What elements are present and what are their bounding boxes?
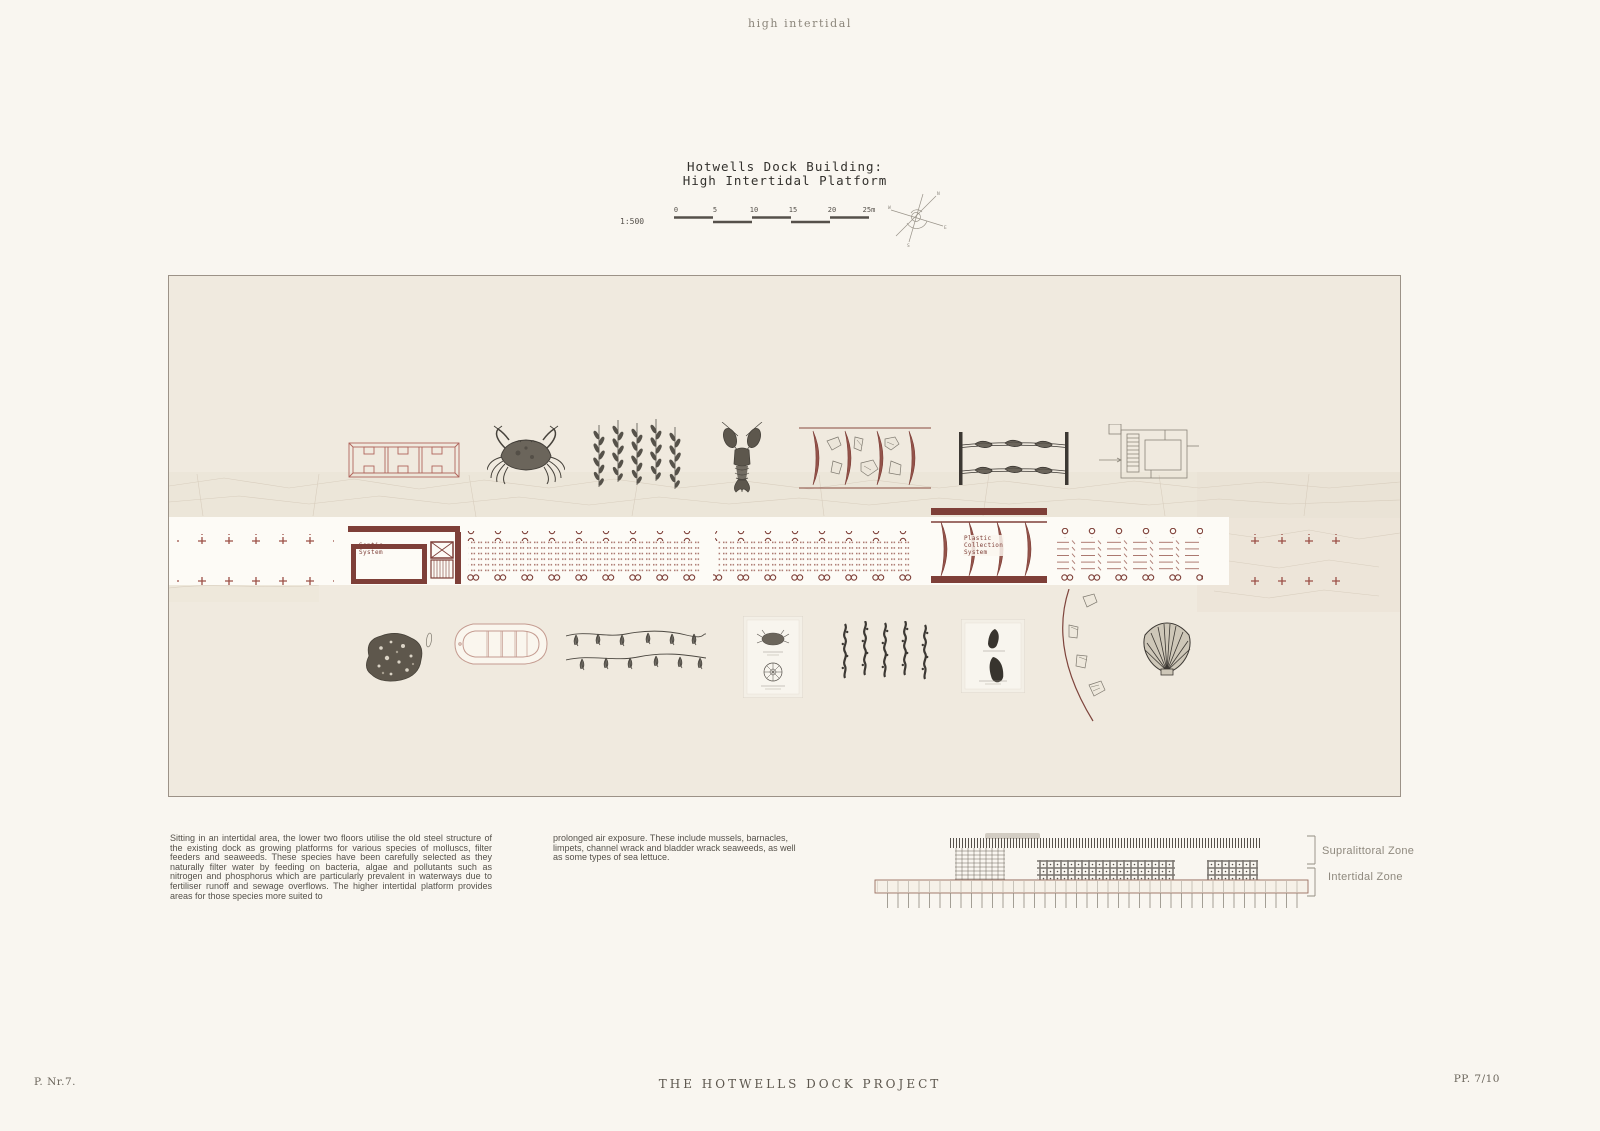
debris-boom-icon [1041, 589, 1121, 724]
growing-crate-icon [346, 433, 464, 483]
presentation-sheet: high intertidal Hotwells Dock Building: … [0, 0, 1600, 1131]
section-elevation-diagram [865, 826, 1315, 910]
scale-tick-25: 25m [863, 206, 876, 214]
zone-brackets [1303, 835, 1317, 899]
compass-s: S [907, 243, 910, 249]
plan-panel: Septic System Plastic Collection System [168, 275, 1401, 797]
page-number-right: PP. 7/10 [1454, 1073, 1500, 1085]
inflatable-boat-icon [453, 622, 549, 666]
barnacle-rock-icon [357, 628, 435, 684]
zone-label-intertidal: Intertidal Zone [1328, 871, 1403, 883]
drawing-title: Hotwells Dock Building: High Intertidal … [585, 160, 985, 187]
drawing-title-line1: Hotwells Dock Building: [585, 160, 985, 174]
septic-system-label: Septic System [359, 542, 383, 556]
plastic-debris-screen-icon [799, 427, 931, 489]
specimen-plate-mussels-icon [961, 619, 1025, 693]
platform-floorplan-icon [1099, 424, 1199, 484]
drawing-title-line2: High Intertidal Platform [585, 174, 985, 188]
seaweed-garland-icon [566, 626, 706, 672]
scale-tick-5: 5 [713, 206, 717, 214]
body-text-column-2: prolonged air exposure. These include mu… [553, 834, 799, 863]
platform-band [169, 506, 1400, 591]
survey-cross-row [177, 534, 334, 544]
project-title-footer: THE HOTWELLS DOCK PROJECT [0, 1077, 1600, 1091]
hanging-seaweed-icon [591, 419, 683, 494]
specimen-plate-crab-urchin-icon [743, 616, 803, 698]
compass-n: N [937, 191, 940, 197]
scale-tick-20: 20 [828, 206, 836, 214]
scale-tick-0: 0 [674, 206, 678, 214]
kelp-strands-icon [837, 621, 933, 683]
compass-e: E [944, 225, 947, 231]
north-compass-icon: N E S W [886, 188, 950, 250]
seaweed-line-rows [1057, 539, 1201, 572]
scale-tick-15: 15 [789, 206, 797, 214]
scallop-shell-icon [1137, 619, 1197, 677]
scale-ratio-label: 1:500 [620, 217, 644, 226]
plastic-collection-label: Plastic Collection System [963, 535, 1004, 556]
zone-label-supralittoral: Supralittoral Zone [1322, 845, 1414, 857]
body-text-column-1: Sitting in an intertidal area, the lower… [170, 834, 492, 901]
buoy-ring-row [464, 531, 704, 541]
growing-rack-dots [468, 541, 702, 575]
scale-tick-10: 10 [750, 206, 758, 214]
compass-w: W [888, 205, 891, 211]
shore-crab-icon [487, 424, 565, 488]
mussel-ropes-icon [959, 430, 1069, 487]
lobster-icon [718, 422, 766, 494]
scale-bar [672, 214, 872, 226]
page-top-label: high intertidal [0, 17, 1600, 30]
